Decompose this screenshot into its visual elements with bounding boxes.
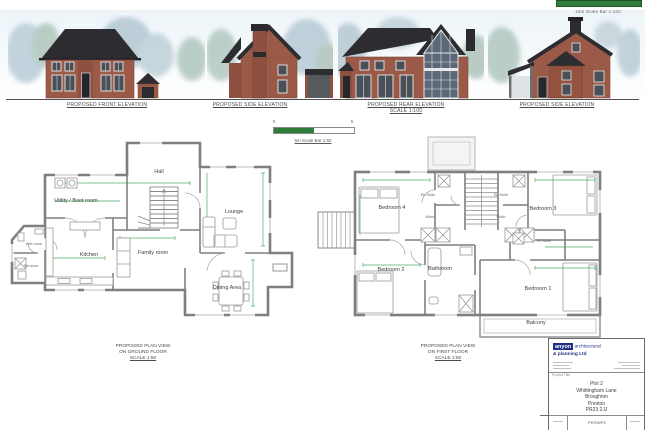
front-elevation-label: PROPOSED FRONT ELEVATION [67,102,147,108]
room-label-bedroom3: Bedroom 3 [530,206,557,212]
room-label-bedroom4: Bedroom 4 [379,205,406,211]
project-title-label: Project Title [552,373,570,377]
project-address: Plot 2 Whittingham Lane Broughton Presto… [549,381,644,414]
room-label-hall: Hall [154,169,163,175]
mid-scale-bar [273,127,355,134]
rear-elevation-label: PROPOSED REAR ELEVATION SCALE 1:100 [368,102,445,114]
title-block-tick [540,415,548,416]
brand-line2: & planning Ltd [553,352,587,357]
top-scale-bar [556,0,642,7]
room-label-wdrb-right: Wdrb [496,215,505,219]
side-elevation-2-illustration [488,15,640,100]
room-label-ensuite-left: En Suite [421,193,435,197]
architectural-drawing-sheet: PROPOSED FRONT ELEVATION PROPOSED SIDE E… [0,0,645,430]
room-label-lounge: Lounge [225,209,243,215]
first-floor-plan-title: PROPOSED PLAN VIEW ON FIRST FLOOR SCALE … [421,344,476,362]
room-label-kitchen: Kitchen [80,252,98,258]
side-elevation-2-label: PROPOSED SIDE ELEVATION [520,102,595,108]
side-elevation-1-illustration [207,15,333,100]
front-elevation-illustration [8,15,205,100]
room-label-wet-room: Wet room [26,242,42,246]
drawing-number: P0709/P2 [568,420,626,425]
room-label-ensuite-mid: En Suite [537,239,551,243]
room-label-utility: Utility / Boot room [54,198,97,204]
ground-floor-plan-title: PROPOSED PLAN VIEW ON GROUND FLOOR SCALE… [116,344,171,362]
room-label-bedroom1: Bedroom 1 [525,286,552,292]
company-logo: anyon architectural [553,343,601,350]
mid-scale-bar-start: 0 [273,119,276,124]
brand-mark: anyon [553,343,573,350]
mid-scale-bar-end: 5 [351,119,354,124]
top-scale-bar-label: 10m Scale Bar 1:100 [575,9,621,15]
room-label-bedroom2: Bedroom 2 [378,267,405,273]
rear-elevation-illustration [338,15,484,100]
room-label-wdrb-left: Wdrb [425,215,434,219]
title-block: anyon architectural & planning Ltd Proje… [548,338,645,430]
room-label-bathroom: Bathroom [428,266,452,272]
room-label-balcony: Balcony [526,320,546,326]
room-label-family-room: Family room [138,250,168,256]
room-label-dining-area: Dining Area [213,285,241,291]
room-label-services: Services [24,264,39,268]
room-label-ensuite-right: En Suite [494,193,508,197]
first-floor-plan-drawing [315,135,605,345]
elevation-ground-line [6,99,639,100]
side-elevation-1-label: PROPOSED SIDE ELEVATION [213,102,288,108]
